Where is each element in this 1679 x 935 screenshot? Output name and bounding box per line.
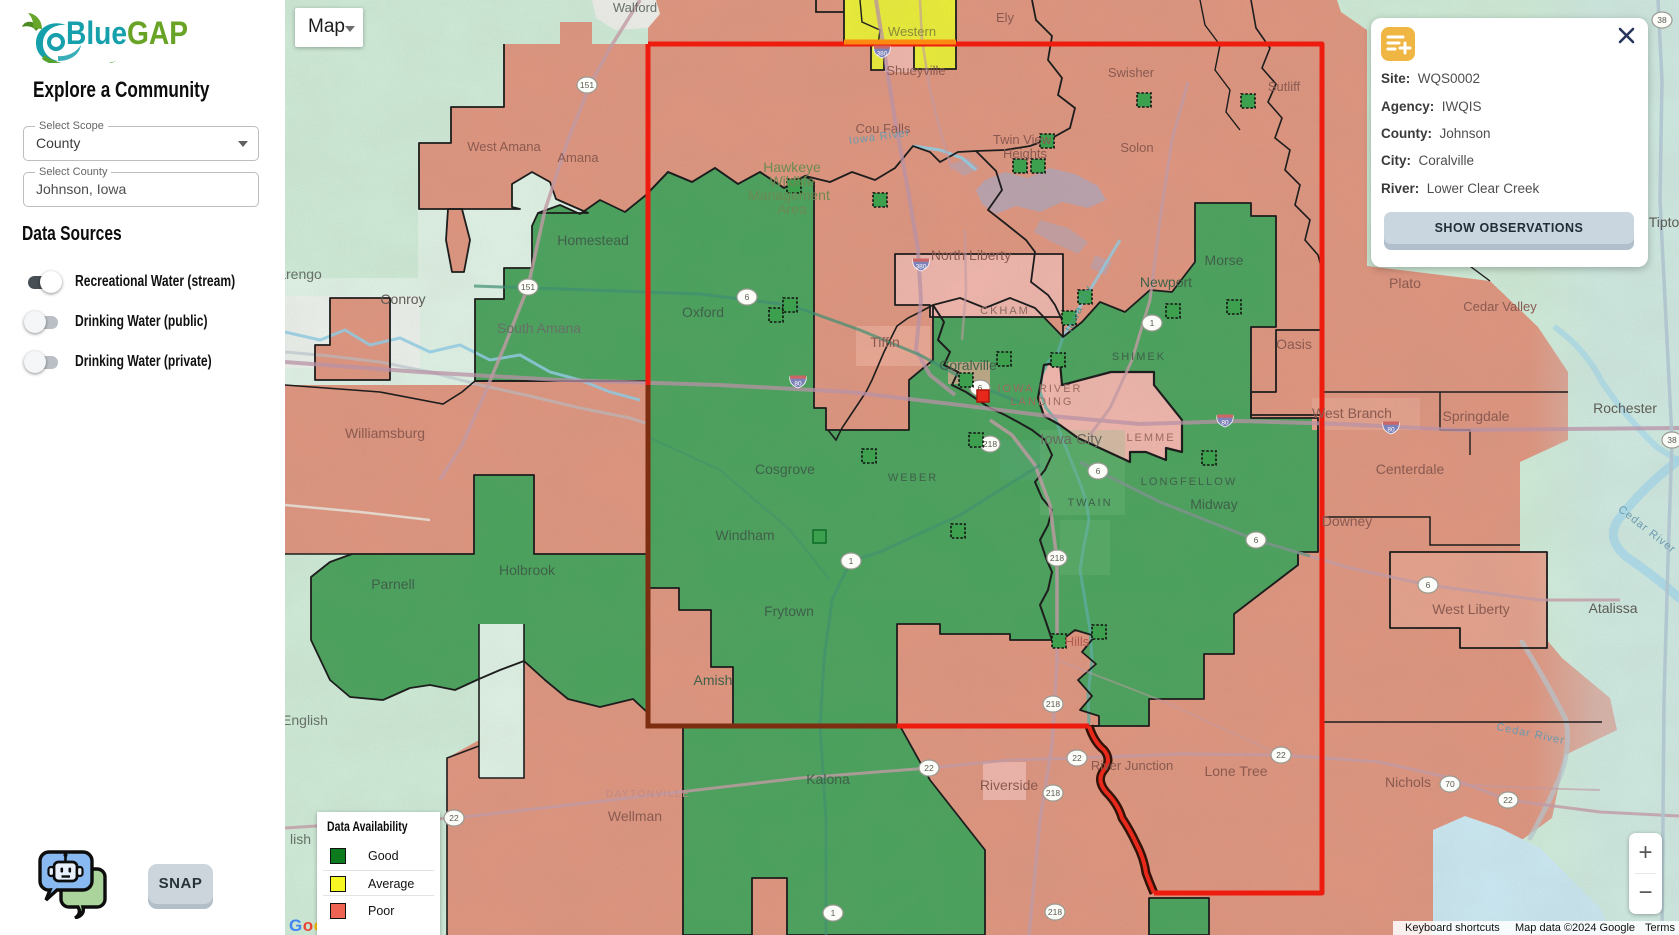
svg-text:380: 380 (916, 264, 927, 271)
svg-text:218: 218 (1046, 788, 1060, 798)
svg-text:Amish: Amish (694, 672, 733, 688)
svg-text:Twin View: Twin View (993, 132, 1052, 147)
svg-text:1: 1 (849, 556, 854, 566)
svg-text:Lone Tree: Lone Tree (1204, 763, 1267, 779)
svg-text:Rochester: Rochester (1593, 400, 1657, 416)
svg-text:1: 1 (1150, 318, 1155, 328)
svg-text:Conroy: Conroy (380, 291, 425, 307)
svg-text:22: 22 (449, 813, 459, 823)
svg-text:Holbrook: Holbrook (499, 562, 556, 578)
svg-text:Tiffin: Tiffin (870, 334, 900, 350)
svg-text:1: 1 (831, 908, 836, 918)
svg-text:LANDING: LANDING (1011, 396, 1074, 408)
svg-text:22: 22 (1503, 795, 1513, 805)
svg-text:6: 6 (1096, 466, 1101, 476)
svg-text:CKHAM: CKHAM (980, 305, 1030, 317)
svg-text:Centerdale: Centerdale (1376, 461, 1445, 477)
svg-text:151: 151 (521, 282, 535, 292)
svg-text:Amana: Amana (557, 150, 599, 165)
svg-text:North Liberty: North Liberty (931, 247, 1011, 263)
svg-text:218: 218 (1046, 699, 1060, 709)
svg-text:Solon: Solon (1120, 140, 1153, 155)
svg-text:LONGFELLOW: LONGFELLOW (1141, 476, 1237, 488)
svg-text:TWAIN: TWAIN (1067, 497, 1112, 509)
svg-text:Coralville: Coralville (939, 357, 997, 373)
svg-text:218: 218 (983, 439, 997, 449)
svg-text:80: 80 (794, 381, 802, 388)
svg-text:6: 6 (745, 292, 750, 302)
svg-text:West Liberty: West Liberty (1432, 601, 1510, 617)
svg-text:Heights: Heights (1003, 146, 1048, 161)
svg-text:lish: lish (290, 831, 311, 847)
svg-text:Swisher: Swisher (1108, 65, 1155, 80)
svg-text:Parnell: Parnell (371, 576, 415, 592)
svg-text:Midway: Midway (1190, 496, 1237, 512)
svg-text:Area: Area (777, 201, 807, 217)
svg-text:English: English (282, 712, 328, 728)
svg-text:River Junction: River Junction (1091, 758, 1173, 773)
svg-text:Oasis: Oasis (1276, 336, 1312, 352)
svg-text:Windham: Windham (715, 527, 774, 543)
svg-text:218: 218 (1050, 553, 1064, 563)
svg-text:6: 6 (1254, 535, 1259, 545)
svg-text:Hills: Hills (1065, 634, 1090, 649)
svg-text:Oxford: Oxford (682, 304, 724, 320)
svg-text:Sutliff: Sutliff (1268, 79, 1301, 94)
svg-text:Homestead: Homestead (557, 232, 629, 248)
svg-text:IOWA RIVER: IOWA RIVER (998, 383, 1083, 395)
svg-text:WEBER: WEBER (888, 472, 938, 484)
svg-text:Newport: Newport (1140, 274, 1192, 290)
svg-text:Walford: Walford (613, 0, 657, 15)
svg-text:Kalona: Kalona (806, 771, 850, 787)
svg-text:Morse: Morse (1205, 252, 1244, 268)
svg-text:38: 38 (1667, 435, 1677, 445)
svg-text:Williamsburg: Williamsburg (345, 425, 425, 441)
svg-text:22: 22 (1072, 753, 1082, 763)
svg-text:Nichols: Nichols (1385, 774, 1431, 790)
svg-text:6: 6 (1426, 580, 1431, 590)
svg-text:Riverside: Riverside (980, 777, 1039, 793)
svg-text:22: 22 (924, 763, 934, 773)
svg-text:Downey: Downey (1322, 513, 1373, 529)
svg-text:Plato: Plato (1389, 275, 1421, 291)
svg-text:LEMME: LEMME (1126, 432, 1175, 444)
svg-text:Shueyville: Shueyville (886, 63, 945, 78)
svg-text:Springdale: Springdale (1443, 408, 1510, 424)
svg-text:151: 151 (580, 80, 594, 90)
svg-text:22: 22 (1276, 750, 1286, 760)
svg-text:South Amana: South Amana (497, 320, 581, 336)
svg-text:70: 70 (1445, 779, 1455, 789)
svg-text:38: 38 (1657, 15, 1667, 25)
svg-text:Atalissa: Atalissa (1588, 600, 1637, 616)
svg-text:Wellman: Wellman (608, 808, 662, 824)
svg-text:Iowa City: Iowa City (1040, 431, 1102, 448)
svg-text:80: 80 (1221, 420, 1229, 427)
svg-text:80: 80 (1387, 427, 1395, 434)
svg-text:Cedar Valley: Cedar Valley (1463, 299, 1537, 314)
svg-text:West Branch: West Branch (1312, 405, 1392, 421)
svg-text:DAYTONVILLE: DAYTONVILLE (606, 789, 691, 800)
svg-text:218: 218 (1048, 907, 1062, 917)
svg-text:West Amana: West Amana (467, 139, 541, 154)
svg-text:Western: Western (888, 24, 936, 39)
svg-text:380: 380 (877, 51, 888, 58)
svg-text:Tipto: Tipto (1649, 214, 1679, 230)
svg-text:Frytown: Frytown (764, 603, 814, 619)
svg-text:Ely: Ely (996, 10, 1015, 25)
svg-text:SHIMEK: SHIMEK (1112, 351, 1166, 363)
svg-text:Cosgrove: Cosgrove (755, 461, 815, 477)
